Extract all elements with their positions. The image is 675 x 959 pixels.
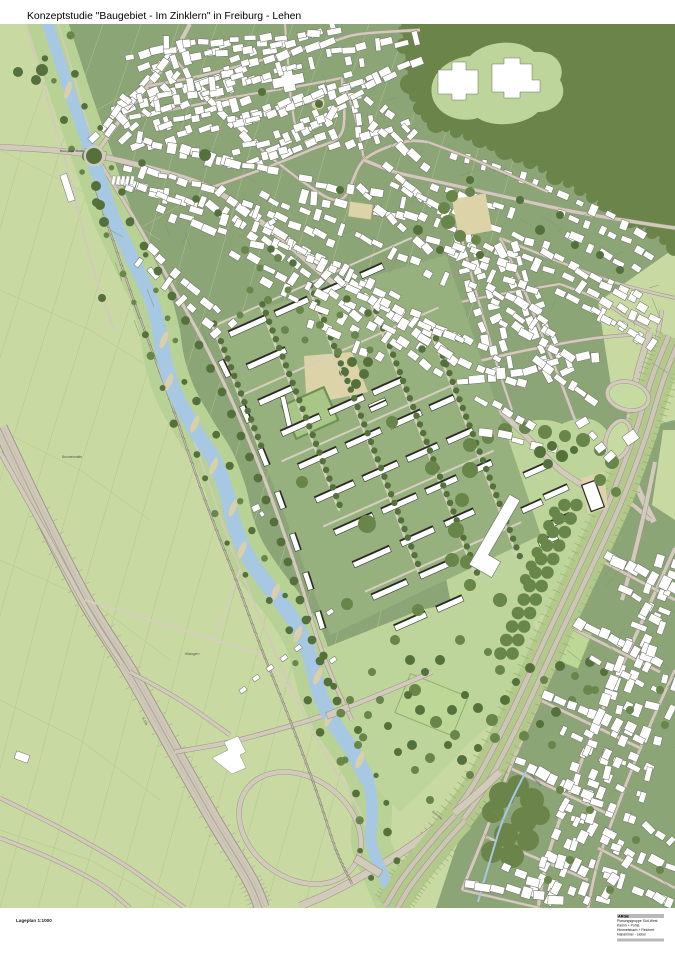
svg-text:Lageplan 1:1000: Lageplan 1:1000 [16,918,52,923]
svg-text:Konzeptstudie "Baugebiet - Im: Konzeptstudie "Baugebiet - Im Zinklern" … [27,11,301,22]
svg-text:Wässgern: Wässgern [185,652,200,656]
svg-text:Kamm + Pohla: Kamm + Pohla [617,923,639,927]
svg-text:Himmelsbach + Reichert: Himmelsbach + Reichert [617,928,654,932]
svg-text:Breisgauer Straße: Breisgauer Straße [60,149,85,153]
svg-text:Brunnenmatte: Brunnenmatte [62,455,82,459]
svg-text:Habammer - Lieber: Habammer - Lieber [617,932,647,936]
svg-text:Planungsgruppe Süd-West: Planungsgruppe Süd-West [617,919,658,923]
